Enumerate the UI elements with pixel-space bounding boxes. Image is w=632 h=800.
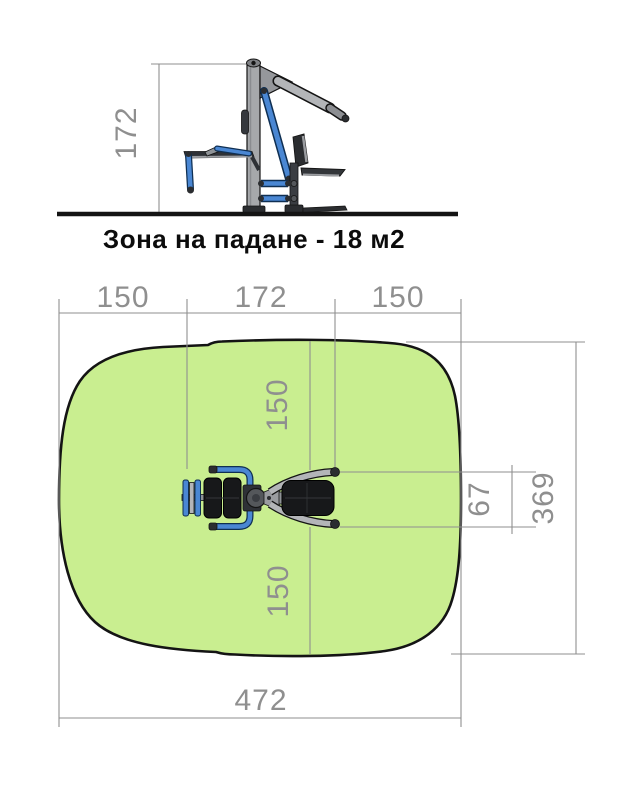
zone-width-dimension: 472 <box>59 684 461 718</box>
fall-zone-diagram: 172 <box>0 0 632 800</box>
lower-frame <box>258 181 291 202</box>
equipment-side-illustration <box>184 59 349 213</box>
fall-zone-caption: Зона на падане - 18 м2 <box>103 224 405 254</box>
dim-bottom-clearance: 150 <box>262 564 295 617</box>
dim-top-clearance: 150 <box>261 378 294 431</box>
dim-left-clearance: 150 <box>96 281 149 314</box>
plan-view: 150 172 150 150 150 67 369 <box>59 281 585 727</box>
elevation-view: 172 <box>57 59 458 214</box>
dim-zone-depth: 369 <box>527 471 560 524</box>
dim-right-clearance: 150 <box>371 281 424 314</box>
left-fin <box>183 480 189 516</box>
dim-equipment-length: 172 <box>234 281 287 314</box>
diagram-canvas: 172 <box>0 0 632 800</box>
post-bracket <box>242 110 249 134</box>
dim-zone-width: 472 <box>234 684 287 717</box>
blue-strut <box>261 88 293 183</box>
dim-equipment-depth: 67 <box>463 481 496 516</box>
lat-arm <box>278 81 349 122</box>
main-post <box>247 61 260 212</box>
base-feet <box>243 205 347 213</box>
left-fin <box>195 480 201 516</box>
elevation-height-dimension: 172 <box>110 64 247 212</box>
elevation-height-label: 172 <box>110 106 143 159</box>
right-seat <box>290 134 345 208</box>
